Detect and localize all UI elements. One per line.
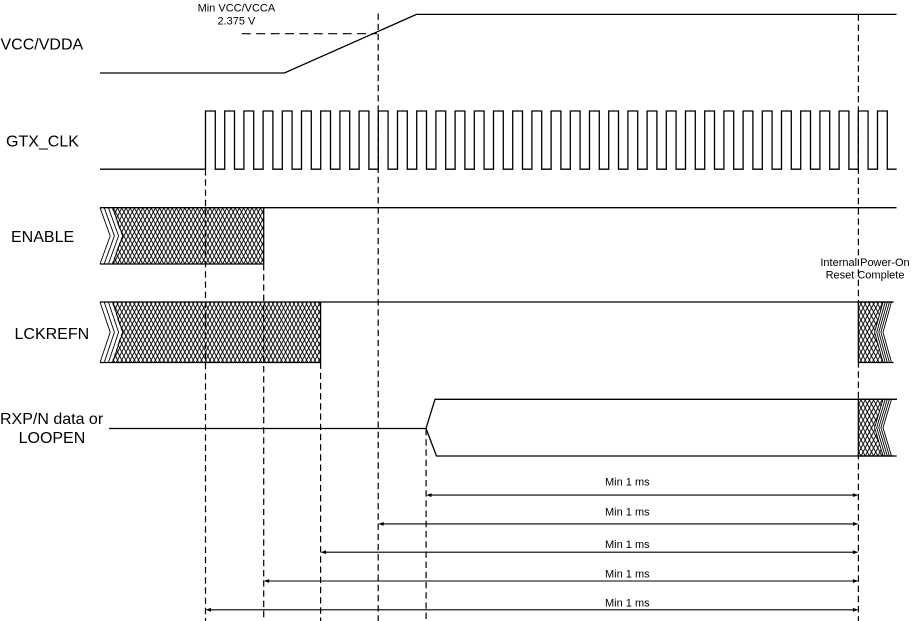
svg-text:RXP/N data or: RXP/N data or — [0, 411, 104, 428]
svg-text:Reset Complete: Reset Complete — [826, 269, 905, 281]
svg-text:Min 1 ms: Min 1 ms — [605, 506, 650, 518]
svg-text:LOOPEN: LOOPEN — [19, 430, 86, 447]
svg-text:2.375 V: 2.375 V — [217, 16, 256, 28]
svg-text:GTX_CLK: GTX_CLK — [6, 133, 79, 150]
svg-text:VCC/VDDA: VCC/VDDA — [1, 37, 84, 54]
svg-text:Min 1 ms: Min 1 ms — [605, 539, 650, 551]
svg-text:Internal Power-On: Internal Power-On — [820, 257, 909, 269]
svg-text:Min 1 ms: Min 1 ms — [605, 477, 650, 489]
svg-text:Min VCC/VCCA: Min VCC/VCCA — [198, 3, 276, 15]
svg-text:LCKREFN: LCKREFN — [15, 326, 90, 343]
svg-text:ENABLE: ENABLE — [11, 229, 74, 246]
svg-text:Min 1 ms: Min 1 ms — [605, 568, 650, 580]
svg-text:Min 1 ms: Min 1 ms — [605, 598, 650, 610]
